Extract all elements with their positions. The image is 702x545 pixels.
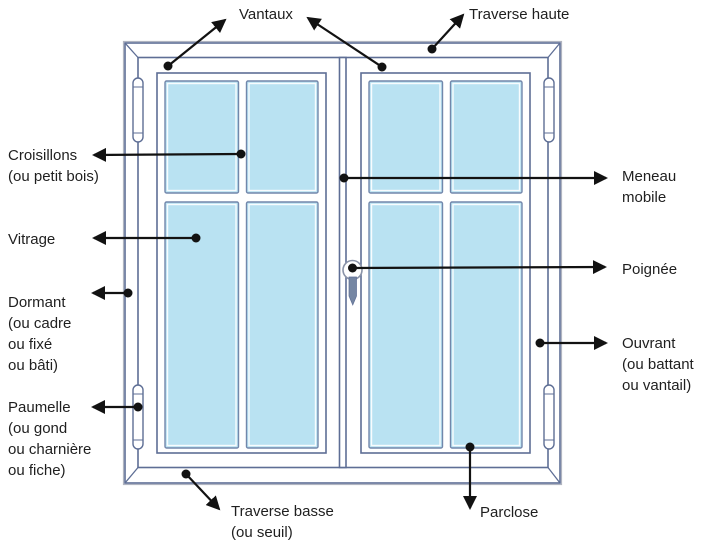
label-line: mobile [622,187,676,208]
right-sash [361,73,530,453]
label-traverse-haute: Traverse haute [469,4,569,25]
label-line: Dormant [8,292,71,313]
label-line: ou fiche) [8,460,91,481]
label-line: Croisillons [8,145,99,166]
label-line: (ou petit bois) [8,166,99,187]
glass-pane [369,81,443,193]
label-ouvrant: Ouvrant (ou battant ou vantail) [622,333,694,396]
label-line: ou fixé [8,334,71,355]
hinge-bottom-left [133,385,143,449]
window-parts-diagram: Vantaux Traverse haute Croisillons (ou p… [0,0,702,545]
hinge-bottom-right [544,385,554,449]
glass-pane [451,81,523,193]
label-line: (ou gond [8,418,91,439]
hinge-top-right [544,78,554,142]
glass-pane [369,202,443,448]
glass-pane [165,81,239,193]
leader-paumelle [93,403,143,412]
label-paumelle: Paumelle (ou gond ou charnière ou fiche) [8,397,91,481]
label-vitrage: Vitrage [8,229,55,250]
label-line: Traverse basse [231,501,334,522]
hinge-top-left [133,78,143,142]
label-line: (ou battant [622,354,694,375]
window-drawing [0,0,702,545]
label-line: Meneau [622,166,676,187]
label-vantaux: Vantaux [239,4,293,25]
label-line: ou bâti) [8,355,71,376]
meneau-strip [340,58,347,468]
label-line: ou vantail) [622,375,694,396]
glass-pane [247,81,319,193]
label-line: Ouvrant [622,333,694,354]
label-croisillons: Croisillons (ou petit bois) [8,145,99,187]
left-sash [157,73,326,453]
glass-pane [247,202,319,448]
glass-pane [451,202,523,448]
label-line: (ou cadre [8,313,71,334]
label-line: ou charnière [8,439,91,460]
label-line: Paumelle [8,397,91,418]
label-traverse-basse: Traverse basse (ou seuil) [231,501,334,543]
leader-dormant [93,289,133,298]
label-parclose: Parclose [480,502,538,523]
label-meneau: Meneau mobile [622,166,676,208]
label-dormant: Dormant (ou cadre ou fixé ou bâti) [8,292,71,376]
label-line: (ou seuil) [231,522,334,543]
label-poignee: Poignée [622,259,677,280]
